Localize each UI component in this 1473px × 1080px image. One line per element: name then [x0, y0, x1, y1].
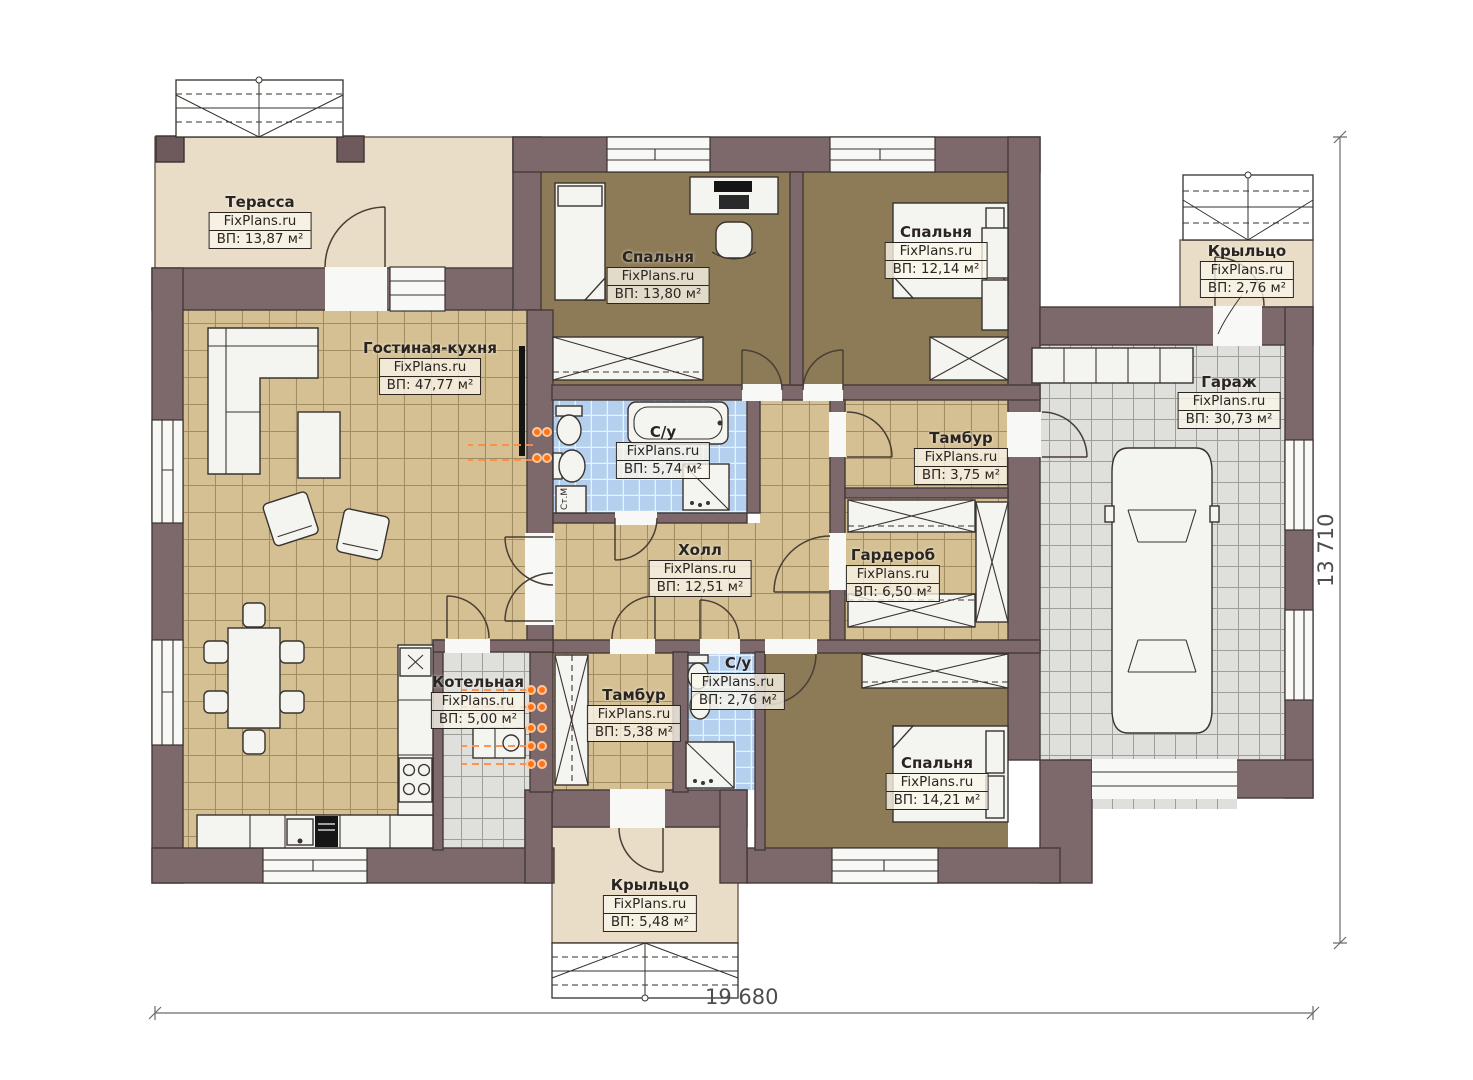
closet-cabinet	[555, 655, 588, 785]
toilet	[688, 655, 708, 689]
dimension-bottom: 19 680	[149, 985, 1319, 1020]
desk	[690, 177, 778, 214]
dimension-height: 13 710	[1314, 514, 1338, 587]
desk-chair	[712, 222, 756, 259]
window	[152, 420, 183, 523]
dimension-width: 19 680	[705, 985, 778, 1009]
closet	[982, 228, 1008, 278]
floor-porch-bottom	[552, 827, 738, 943]
floor-plan: Ст.М	[0, 0, 1473, 1080]
window	[607, 137, 710, 172]
shower	[683, 464, 729, 510]
armchair	[336, 508, 390, 561]
bed	[555, 183, 605, 300]
svg-text:Ст.М: Ст.М	[560, 488, 570, 510]
bed	[893, 726, 1008, 822]
wardrobe-cabinet	[862, 654, 1008, 688]
oven-icon	[315, 816, 338, 847]
bathtub	[628, 402, 728, 444]
column	[337, 136, 364, 162]
sink	[553, 450, 585, 482]
window	[1285, 440, 1313, 530]
tv-icon	[519, 346, 525, 456]
column	[156, 136, 184, 162]
closet	[982, 280, 1008, 330]
toilet	[556, 406, 582, 445]
stairs-terrace	[176, 77, 343, 137]
wardrobe-cabinet	[553, 337, 703, 380]
garage-apron	[1092, 798, 1237, 809]
window	[832, 848, 938, 883]
floor-plan-drawing: Ст.М	[0, 0, 1473, 1080]
stove-icon	[399, 758, 432, 802]
window	[152, 640, 183, 745]
boiler	[473, 728, 525, 758]
wardrobe-cabinet	[930, 337, 1008, 380]
car	[1105, 448, 1219, 733]
floor-tambur1	[845, 400, 1008, 488]
window	[1285, 610, 1313, 700]
washing-machine: Ст.М	[556, 486, 586, 513]
stairs-porch-top	[1183, 172, 1313, 240]
floor-porch-top	[1180, 240, 1313, 307]
window	[390, 267, 445, 311]
sink	[690, 693, 710, 719]
shower	[686, 742, 734, 788]
window	[263, 848, 367, 883]
garage-shelves	[1032, 348, 1193, 383]
floor-terrace	[155, 137, 513, 270]
window	[830, 137, 935, 172]
dimension-right: 13 710	[1314, 131, 1347, 949]
coffee-table	[298, 412, 340, 478]
